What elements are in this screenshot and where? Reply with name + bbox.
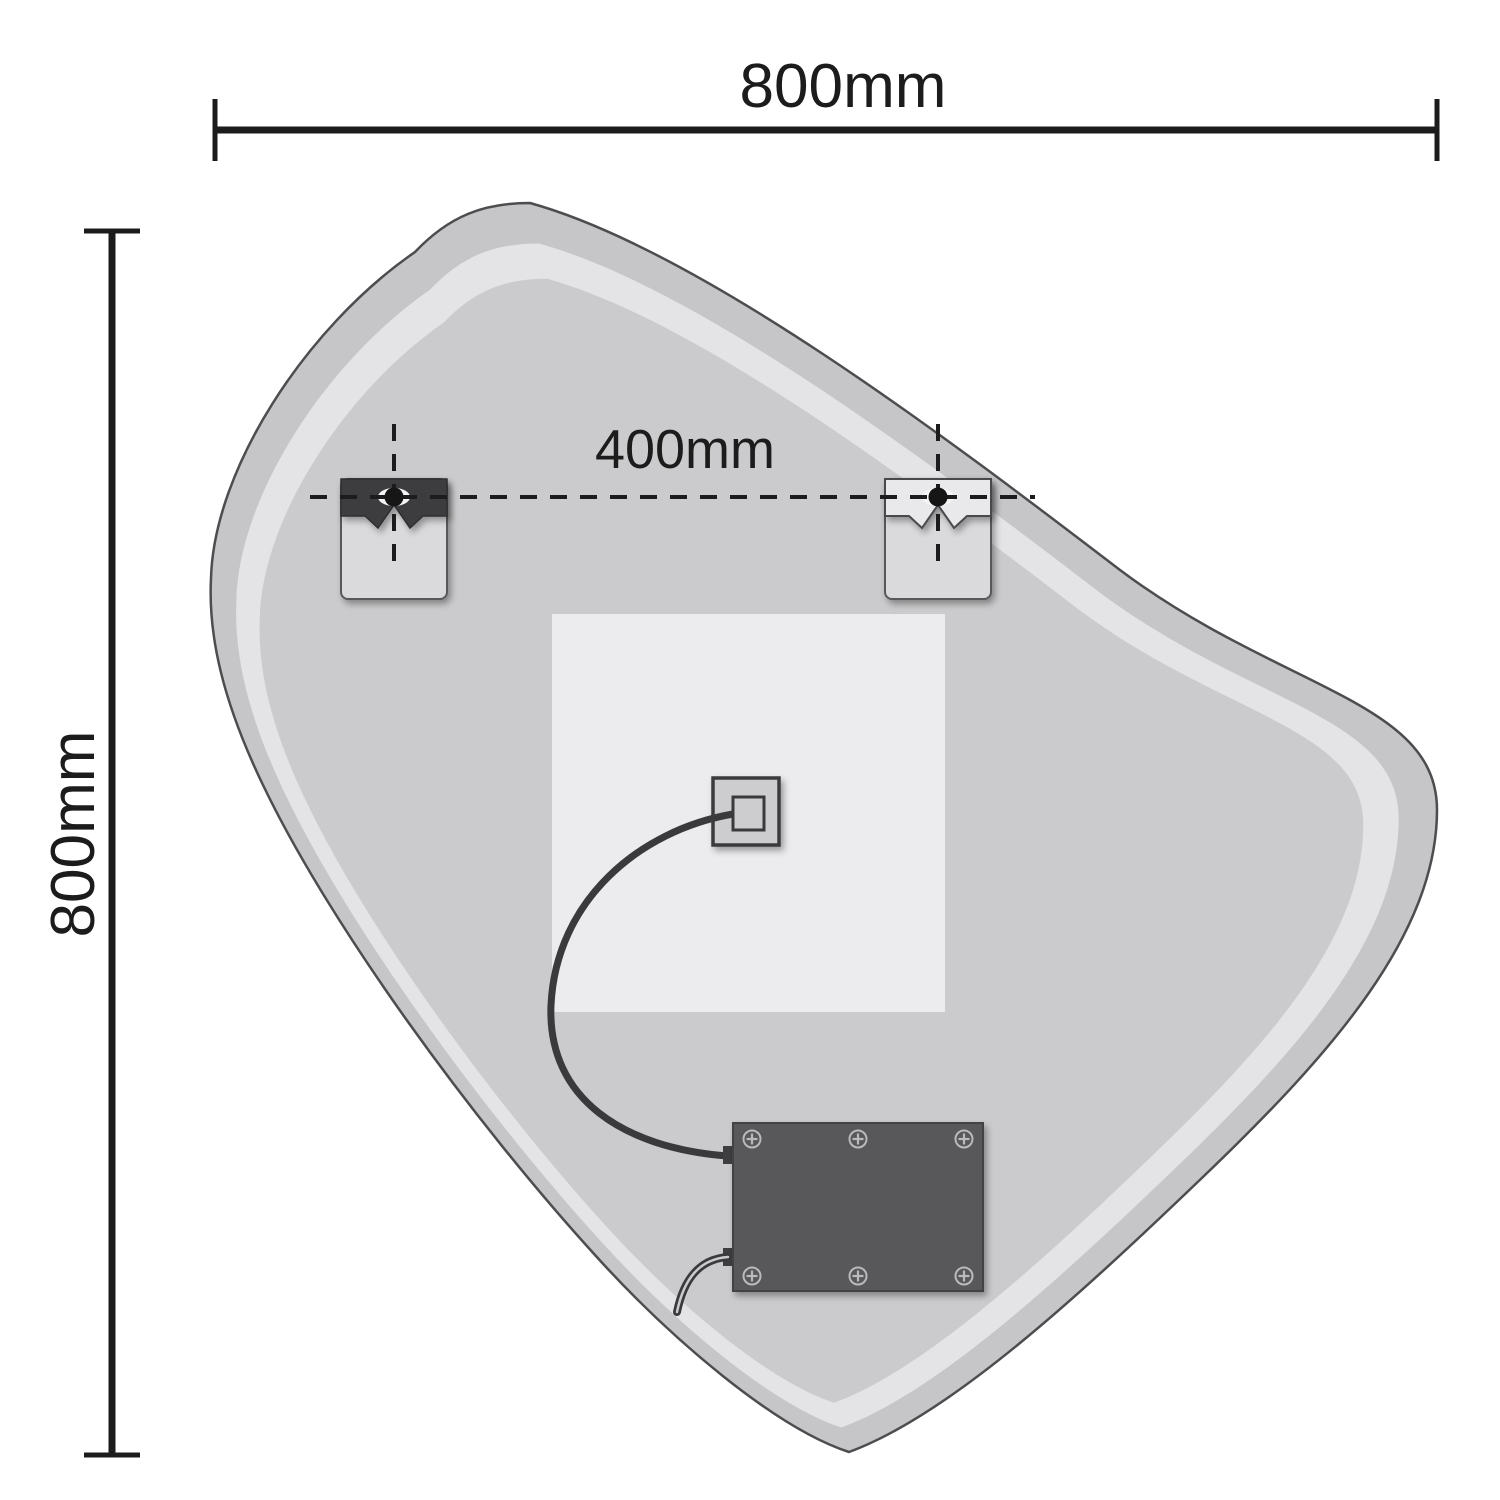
bracket-spacing-label: 400mm (595, 418, 775, 480)
height-dimension-label: 800mm (39, 731, 108, 938)
width-dimension: 800mm (215, 52, 1437, 161)
height-dimension: 800mm (39, 231, 140, 1455)
width-dimension-label: 800mm (740, 52, 947, 121)
screw-head-right (929, 488, 948, 507)
screw-head-left (385, 488, 404, 507)
junction-box-inner (733, 797, 764, 830)
mirror-installation-diagram: 800mm 800mm 400mm (0, 0, 1500, 1500)
diagram-canvas: 800mm 800mm 400mm (0, 0, 1500, 1500)
